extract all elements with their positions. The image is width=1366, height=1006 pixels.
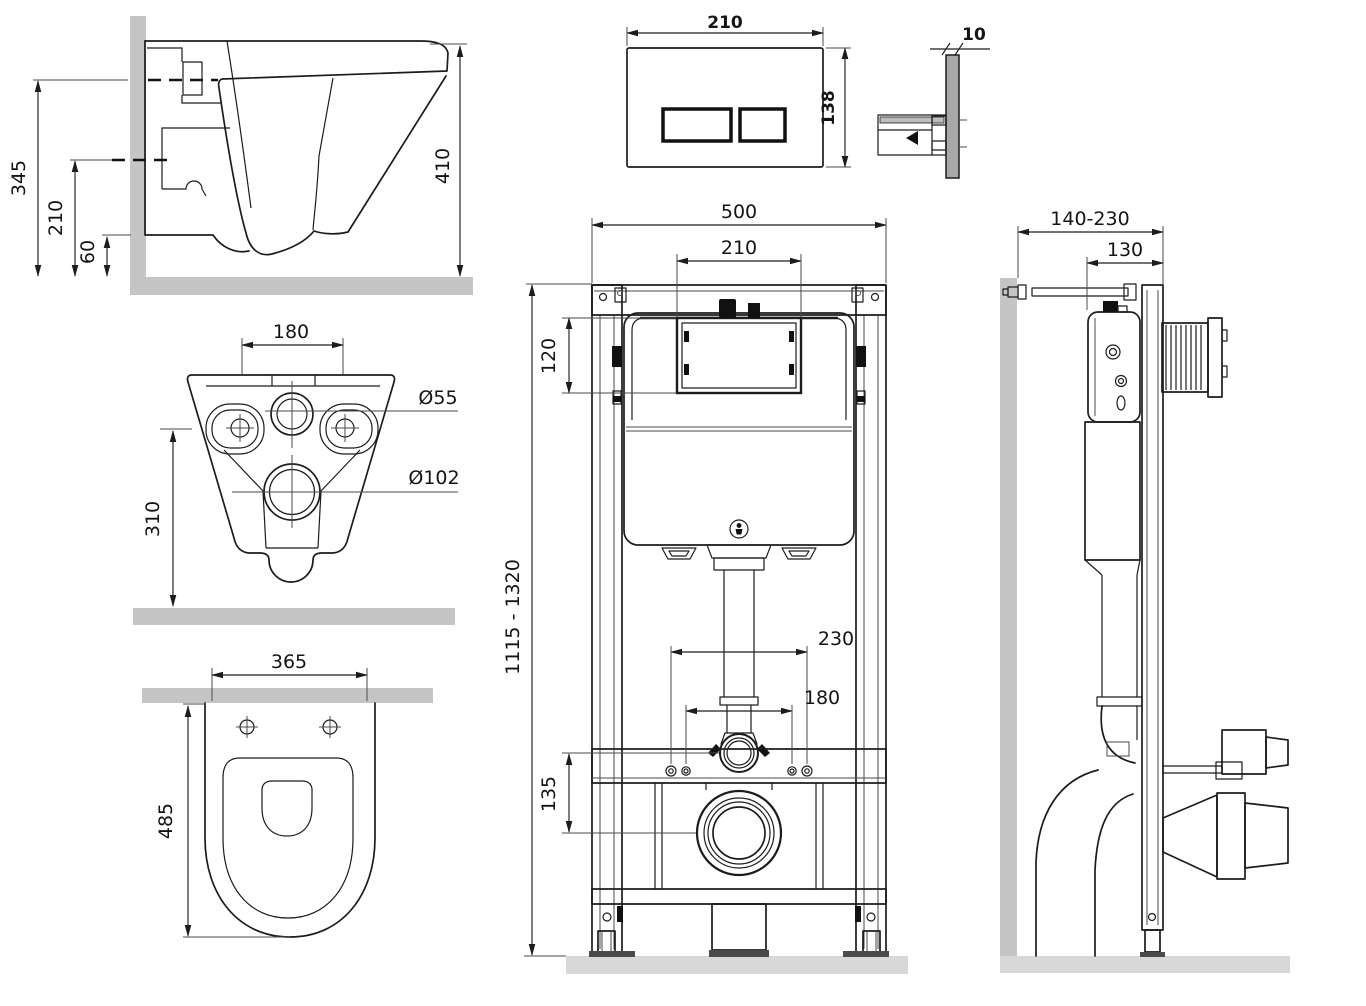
dim-410: 410 bbox=[430, 44, 467, 276]
drain-socket bbox=[655, 783, 823, 889]
floor-section bbox=[133, 608, 455, 625]
floor-section bbox=[1000, 956, 1290, 973]
right-foot-clip bbox=[855, 906, 861, 922]
cistern-side bbox=[1085, 301, 1140, 575]
dim-210-plate: 210 bbox=[627, 13, 823, 46]
dim-label-310: 310 bbox=[142, 501, 164, 537]
dim-130: 130 bbox=[1087, 239, 1163, 310]
fixing-box bbox=[183, 62, 202, 95]
dim-label-210-frame: 210 bbox=[721, 237, 757, 259]
seat-ring bbox=[223, 758, 353, 918]
dim-60: 60 bbox=[77, 235, 131, 276]
dim-label-365: 365 bbox=[271, 651, 307, 673]
dim-180-back: 180 bbox=[242, 321, 343, 374]
dim-label-10: 10 bbox=[962, 25, 986, 45]
left-boss bbox=[206, 404, 264, 454]
dim-label-485: 485 bbox=[155, 803, 177, 839]
left-bolt-hole bbox=[226, 414, 254, 442]
flush-pipe bbox=[720, 570, 758, 744]
toilet-plan-outline bbox=[205, 703, 375, 937]
flush-plate-side-view: 10 bbox=[878, 25, 990, 178]
service-knob bbox=[748, 303, 760, 318]
latch-arrow bbox=[906, 131, 918, 145]
brand-logo-icon bbox=[730, 520, 748, 538]
small-flush-button bbox=[740, 109, 785, 141]
wall-section bbox=[130, 16, 146, 295]
dim-label-500: 500 bbox=[721, 201, 757, 223]
toilet-back-view: 180 Ø55 Ø102 310 bbox=[133, 321, 460, 625]
dim-label-130: 130 bbox=[1107, 239, 1143, 261]
toilet-back-outline bbox=[188, 375, 395, 582]
big-flush-button bbox=[663, 109, 731, 141]
corrugated-sleeve bbox=[1162, 318, 1227, 397]
toilet-side-view: 345 210 60 410 bbox=[8, 16, 473, 295]
dim-label-138: 138 bbox=[819, 90, 839, 126]
dim-label-345: 345 bbox=[8, 160, 30, 196]
dim-height-range: 1115 - 1320 bbox=[502, 284, 592, 956]
drawing-canvas: 345 210 60 410 bbox=[0, 0, 1366, 1006]
dim-135: 135 bbox=[538, 753, 719, 833]
right-boss-inner bbox=[326, 410, 372, 448]
concealed-cistern bbox=[612, 299, 866, 570]
dim-10: 10 bbox=[930, 25, 990, 55]
left-boss-inner bbox=[212, 410, 258, 448]
flush-plate-opening bbox=[677, 318, 801, 393]
drain-outlet-box bbox=[709, 904, 769, 957]
inlet-channel bbox=[162, 128, 230, 196]
dim-label-60: 60 bbox=[77, 240, 99, 264]
toilet-side-outline bbox=[112, 41, 448, 255]
water-inlet-hole bbox=[271, 381, 313, 448]
dim-310: 310 bbox=[142, 429, 192, 606]
bowl-opening bbox=[262, 781, 312, 836]
dim-label-210-plate: 210 bbox=[707, 13, 743, 33]
frame-front-view: 500 210 120 1115 - 1320 230 180 bbox=[502, 201, 908, 974]
flush-pipe-side bbox=[1097, 575, 1142, 763]
dim-label-d102: Ø102 bbox=[408, 467, 459, 489]
right-rail-hole bbox=[867, 913, 875, 921]
filling-valve-knob bbox=[719, 299, 736, 318]
dim-label-210-side: 210 bbox=[45, 200, 67, 236]
technical-drawing-page: 345 210 60 410 bbox=[0, 0, 1366, 1006]
frame-top-bar bbox=[592, 285, 886, 315]
dim-label-135: 135 bbox=[538, 776, 560, 812]
water-inlet-stub bbox=[1163, 730, 1288, 779]
dim-120: 120 bbox=[538, 318, 676, 393]
lower-crossbar bbox=[592, 889, 886, 904]
dim-label-140-230: 140-230 bbox=[1050, 208, 1129, 230]
dim-label-d55: Ø55 bbox=[418, 387, 457, 409]
left-clamp bbox=[612, 346, 622, 367]
floor-section bbox=[566, 956, 908, 974]
right-hinge-mark bbox=[319, 716, 341, 738]
dim-210-frame: 210 bbox=[677, 237, 801, 317]
frame-side-view: 140-230 130 bbox=[1000, 208, 1290, 973]
wall-section bbox=[142, 688, 433, 703]
wall-anchor-rod bbox=[1003, 284, 1136, 300]
right-clamp bbox=[856, 346, 866, 367]
dim-label-230: 230 bbox=[818, 628, 854, 650]
toilet-top-view: 365 485 bbox=[142, 651, 433, 937]
lower-mount-pin bbox=[932, 141, 946, 150]
drain-outlet-stub bbox=[1163, 793, 1288, 879]
left-hinge-mark bbox=[236, 716, 258, 738]
left-rail-hole bbox=[603, 913, 611, 921]
dim-label-120: 120 bbox=[538, 338, 560, 374]
dim-label-1115-1320: 1115 - 1320 bbox=[502, 559, 524, 675]
dim-label-180-frame: 180 bbox=[804, 687, 840, 709]
floor-section bbox=[130, 277, 473, 295]
drain-bend-pipe bbox=[1036, 770, 1133, 956]
plate-profile bbox=[946, 55, 959, 178]
wall-section bbox=[1000, 278, 1017, 956]
flush-plate-front-view: 210 138 bbox=[627, 13, 851, 167]
dim-345: 345 bbox=[8, 80, 128, 276]
dim-label-410: 410 bbox=[432, 148, 454, 184]
dim-label-180-back: 180 bbox=[273, 321, 309, 343]
left-foot-clip bbox=[617, 906, 623, 922]
right-bolt-hole bbox=[331, 414, 359, 442]
